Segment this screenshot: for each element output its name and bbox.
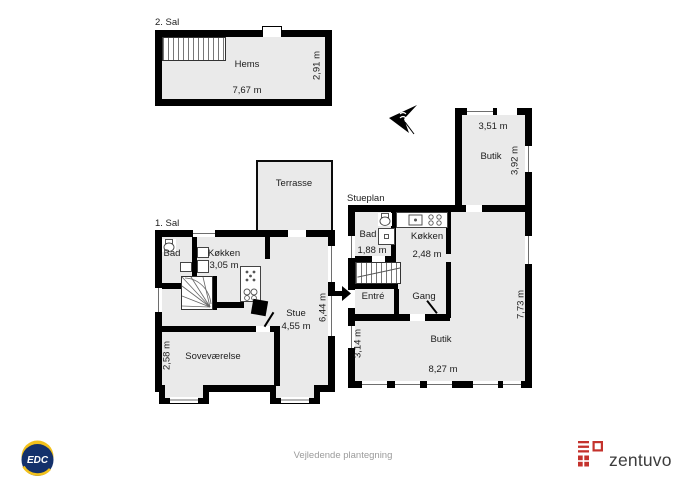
window (155, 288, 162, 312)
room-label-sovevaerelse: Soveværelse (163, 351, 263, 362)
room-label-bad-1sal: Bad (152, 248, 192, 259)
door-opening (466, 205, 482, 212)
room-label-koekken-1sal: Køkken (189, 248, 259, 259)
window (193, 230, 215, 237)
window (473, 381, 498, 388)
edc-logo: EDC (19, 439, 56, 476)
window (170, 397, 198, 403)
ground-floor-title: Stueplan (347, 193, 385, 204)
window (281, 397, 309, 403)
window (362, 381, 387, 388)
floor-plan-page: 2. Sal Hems 7,67 m 2,91 m Terrasse 1. Sa… (0, 0, 687, 485)
room-label-hems: Hems (207, 59, 287, 70)
door-opening (410, 314, 425, 321)
wall (274, 326, 280, 386)
bay-floor (276, 380, 314, 398)
disclaimer-text: Vejledende plantegning (243, 450, 443, 461)
first-floor-title: 1. Sal (155, 218, 179, 229)
wall (348, 314, 450, 321)
second-floor-stairs-icon (162, 37, 226, 61)
room-label-gang: Gang (394, 291, 454, 302)
bay-floor (165, 380, 203, 398)
window (503, 381, 521, 388)
dim-hems-width: 7,67 m (207, 85, 287, 96)
zentuvo-logo: zentuvo (578, 441, 672, 467)
room-label-terrasse: Terrasse (254, 178, 334, 189)
wall (446, 262, 451, 318)
zentuvo-logo-text: zentuvo (609, 453, 672, 467)
dim-koekken-stueplan: 2,48 m (390, 249, 464, 260)
dim-sovevaerelse: 2,58 m (162, 334, 173, 378)
window (395, 381, 420, 388)
wall (265, 237, 270, 259)
window (427, 381, 452, 388)
window (525, 236, 532, 264)
wall (214, 302, 244, 308)
zentuvo-glyph-icon (578, 441, 603, 467)
dim-stue-height: 6,44 m (318, 286, 329, 330)
terrace (256, 160, 333, 238)
toilet-icon (378, 213, 392, 226)
dim-koekken-1sal: 3,05 m (189, 260, 259, 271)
second-floor-opening (262, 26, 282, 37)
door-opening (497, 108, 517, 115)
room-label-butik-main: Butik (401, 334, 481, 345)
window (467, 108, 493, 115)
dim-shop-top-width: 3,51 m (453, 121, 533, 132)
room-label-koekken-stueplan: Køkken (390, 231, 464, 242)
winder-stairs-icon (181, 276, 213, 310)
edc-logo-text: EDC (27, 455, 49, 466)
kitchen-counter-icon (396, 212, 448, 228)
wall (355, 284, 398, 289)
dim-butik-width: 8,27 m (403, 364, 483, 375)
dim-butik-left-height: 3,14 m (353, 322, 364, 366)
dim-hems-height: 2,91 m (312, 44, 323, 88)
second-floor-title: 2. Sal (155, 17, 179, 28)
room-label-bad-stueplan: Bad (348, 229, 388, 240)
terrace-door-opening (288, 230, 306, 237)
window (328, 246, 335, 282)
dim-shop-top-height: 3,92 m (510, 139, 521, 183)
dim-butik-right-height: 7,73 m (516, 283, 527, 327)
kitchen-counter-icon (240, 266, 261, 302)
cursor-icon (388, 104, 418, 136)
